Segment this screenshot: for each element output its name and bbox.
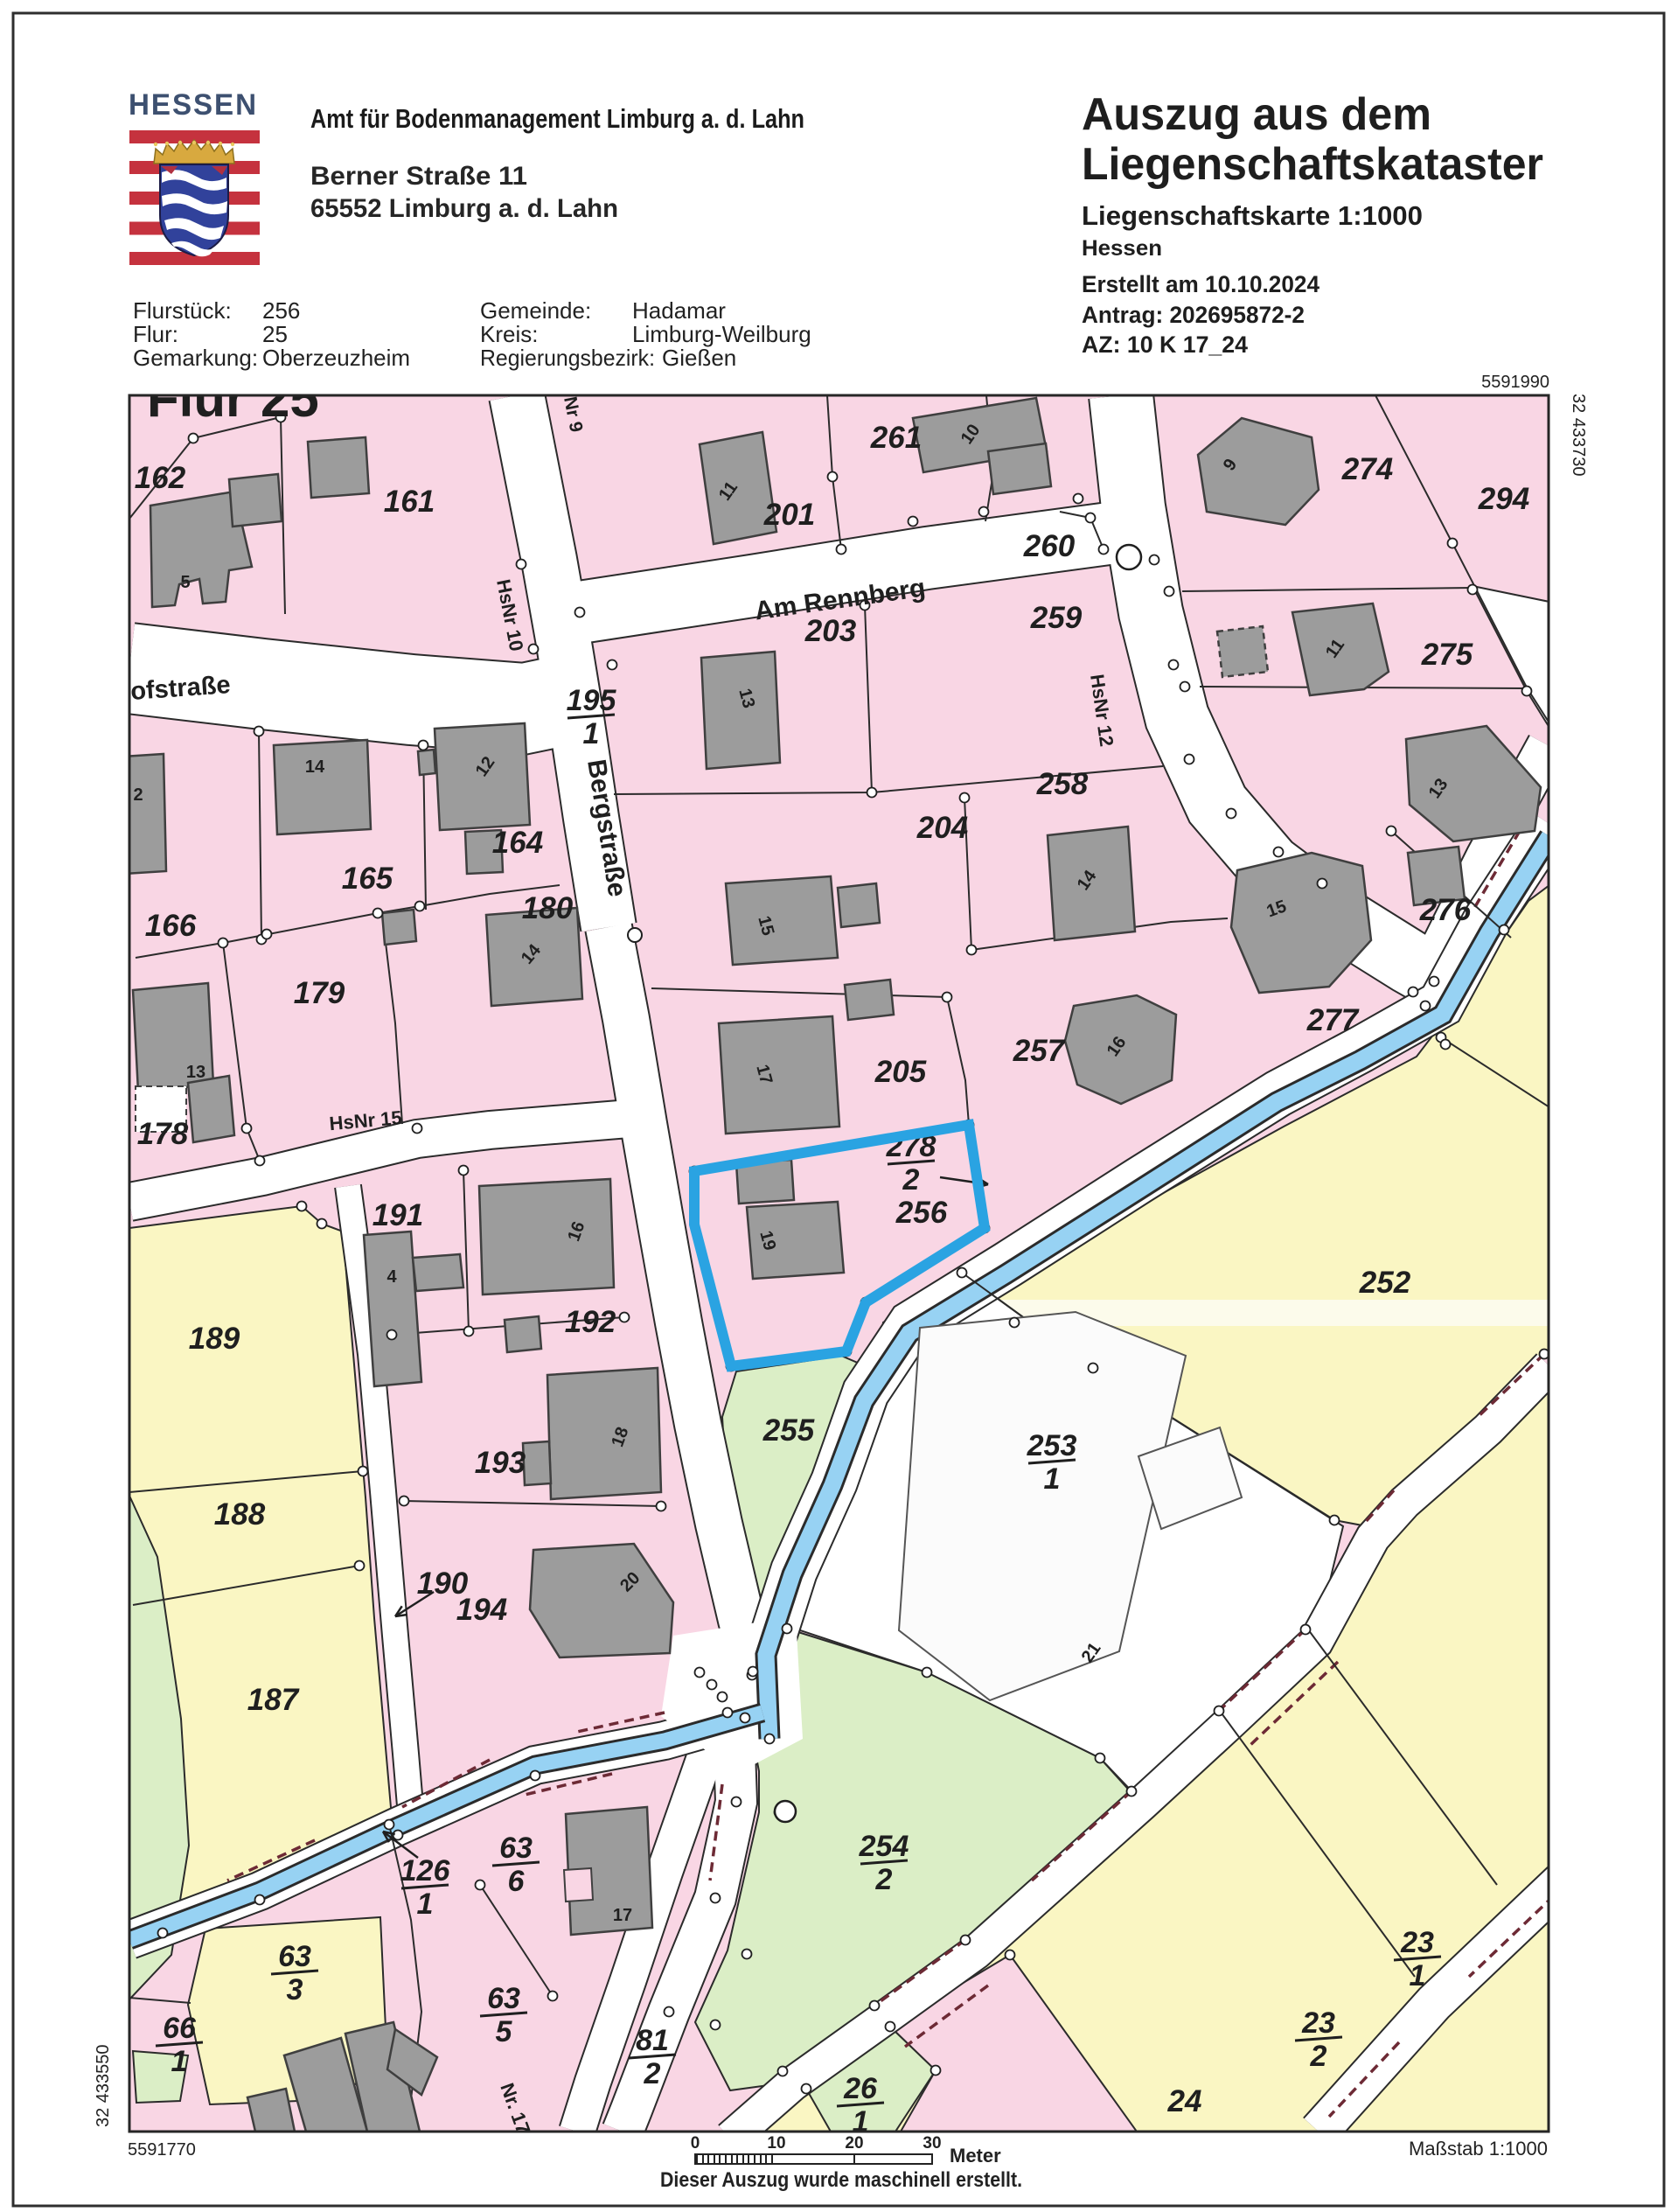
- svg-text:257: 257: [1013, 1034, 1066, 1068]
- svg-text:Erstellt am 10.10.2024: Erstellt am 10.10.2024: [1082, 271, 1319, 297]
- svg-text:26: 26: [843, 2072, 878, 2105]
- svg-text:Amt für Bodenmanagement Limbur: Amt für Bodenmanagement Limburg a. d. La…: [310, 103, 804, 134]
- svg-text:187: 187: [247, 1683, 300, 1717]
- svg-text:10: 10: [767, 2134, 785, 2153]
- svg-text:Liegenschaftskataster: Liegenschaftskataster: [1082, 139, 1543, 190]
- svg-text:274: 274: [1341, 452, 1393, 486]
- svg-text:Hadamar: Hadamar: [632, 297, 726, 324]
- svg-text:201: 201: [763, 498, 815, 532]
- svg-text:Antrag: 202695872-2: Antrag: 202695872-2: [1082, 302, 1305, 328]
- svg-text:276: 276: [1419, 893, 1472, 927]
- svg-text:255: 255: [762, 1413, 815, 1448]
- svg-text:165: 165: [342, 862, 393, 896]
- svg-text:1: 1: [583, 717, 600, 750]
- svg-text:188: 188: [214, 1497, 266, 1532]
- svg-text:Limburg-Weilburg: Limburg-Weilburg: [632, 321, 811, 347]
- svg-text:66: 66: [163, 2012, 197, 2045]
- svg-text:32 433550: 32 433550: [94, 2044, 113, 2127]
- svg-text:20: 20: [845, 2134, 863, 2153]
- svg-text:190: 190: [417, 1567, 469, 1601]
- svg-text:204: 204: [916, 811, 968, 845]
- svg-text:63: 63: [278, 1940, 311, 1973]
- svg-text:203: 203: [804, 614, 857, 648]
- svg-text:Liegenschaftskarte 1:1000: Liegenschaftskarte 1:1000: [1082, 200, 1423, 231]
- svg-text:252: 252: [1359, 1266, 1411, 1300]
- svg-text:277: 277: [1306, 1003, 1360, 1037]
- svg-text:2: 2: [644, 2057, 661, 2090]
- svg-text:253: 253: [1027, 1429, 1077, 1462]
- svg-text:5591770: 5591770: [128, 2140, 196, 2160]
- svg-text:Hessen: Hessen: [1082, 236, 1162, 261]
- svg-text:3: 3: [287, 1973, 303, 2006]
- svg-text:4: 4: [386, 1267, 397, 1287]
- svg-text:30: 30: [923, 2134, 941, 2153]
- svg-text:161: 161: [384, 485, 435, 519]
- svg-text:2: 2: [902, 1163, 920, 1197]
- svg-text:164: 164: [492, 826, 543, 860]
- svg-text:63: 63: [487, 1982, 520, 2015]
- svg-text:294: 294: [1478, 482, 1529, 516]
- svg-text:178: 178: [137, 1117, 189, 1151]
- svg-text:81: 81: [636, 2024, 669, 2057]
- svg-text:259: 259: [1030, 601, 1083, 635]
- svg-text:0: 0: [691, 2134, 700, 2153]
- svg-text:254: 254: [859, 1830, 909, 1863]
- svg-text:32 433730: 32 433730: [1569, 394, 1588, 477]
- svg-text:1: 1: [417, 1888, 434, 1921]
- svg-text:189: 189: [189, 1322, 240, 1356]
- svg-text:256: 256: [262, 297, 300, 324]
- svg-text:25: 25: [262, 321, 288, 347]
- svg-text:258: 258: [1036, 767, 1089, 801]
- svg-text:2: 2: [1310, 2040, 1327, 2073]
- svg-text:126: 126: [400, 1854, 451, 1888]
- svg-text:162: 162: [135, 461, 186, 495]
- svg-text:1: 1: [1410, 1959, 1426, 1992]
- svg-text:65552 Limburg a. d. Lahn: 65552 Limburg a. d. Lahn: [310, 194, 618, 223]
- svg-text:Maßstab 1:1000: Maßstab 1:1000: [1409, 2138, 1548, 2160]
- svg-text:Auszug aus dem: Auszug aus dem: [1082, 89, 1431, 140]
- svg-text:24: 24: [1167, 2084, 1202, 2118]
- svg-text:6: 6: [508, 1865, 526, 1898]
- svg-text:23: 23: [1400, 1926, 1434, 1959]
- svg-text:179: 179: [294, 976, 345, 1010]
- svg-text:Regierungsbezirk:: Regierungsbezirk:: [480, 345, 655, 371]
- svg-text:256: 256: [895, 1196, 948, 1230]
- svg-text:275: 275: [1421, 638, 1473, 672]
- svg-text:Gemarkung:: Gemarkung:: [133, 345, 258, 371]
- svg-text:Gemeinde:: Gemeinde:: [480, 297, 591, 324]
- svg-text:192: 192: [565, 1305, 616, 1339]
- svg-text:2: 2: [133, 785, 143, 805]
- svg-text:5: 5: [180, 573, 190, 592]
- svg-text:193: 193: [475, 1446, 526, 1480]
- svg-text:195: 195: [567, 684, 617, 717]
- svg-text:Flur:: Flur:: [133, 321, 178, 347]
- svg-text:Gießen: Gießen: [662, 345, 736, 371]
- svg-text:Oberzeuzheim: Oberzeuzheim: [262, 345, 410, 371]
- svg-text:261: 261: [870, 421, 922, 455]
- svg-text:Meter: Meter: [950, 2145, 1001, 2167]
- svg-text:23: 23: [1301, 2006, 1335, 2040]
- svg-text:1: 1: [171, 2045, 188, 2078]
- svg-text:5591990: 5591990: [1481, 373, 1549, 392]
- svg-text:14: 14: [305, 757, 325, 777]
- svg-text:Flurstück:: Flurstück:: [133, 297, 232, 324]
- svg-text:AZ: 10 K 17_24: AZ: 10 K 17_24: [1082, 331, 1248, 358]
- svg-text:260: 260: [1023, 529, 1076, 563]
- svg-text:191: 191: [373, 1198, 423, 1232]
- svg-text:Kreis:: Kreis:: [480, 321, 538, 347]
- svg-text:5: 5: [496, 2015, 513, 2048]
- svg-text:166: 166: [145, 909, 197, 943]
- svg-text:205: 205: [874, 1055, 927, 1089]
- svg-text:Dieser Auszug wurde maschinell: Dieser Auszug wurde maschinell erstellt.: [660, 2168, 1022, 2192]
- svg-text:63: 63: [499, 1832, 533, 1865]
- svg-text:2: 2: [875, 1863, 893, 1896]
- svg-text:13: 13: [186, 1063, 205, 1082]
- svg-text:Berner Straße 11: Berner Straße 11: [310, 162, 527, 191]
- svg-text:HESSEN: HESSEN: [129, 88, 258, 122]
- svg-text:1: 1: [1044, 1462, 1061, 1496]
- svg-text:17: 17: [613, 1906, 632, 1925]
- svg-text:180: 180: [522, 891, 574, 925]
